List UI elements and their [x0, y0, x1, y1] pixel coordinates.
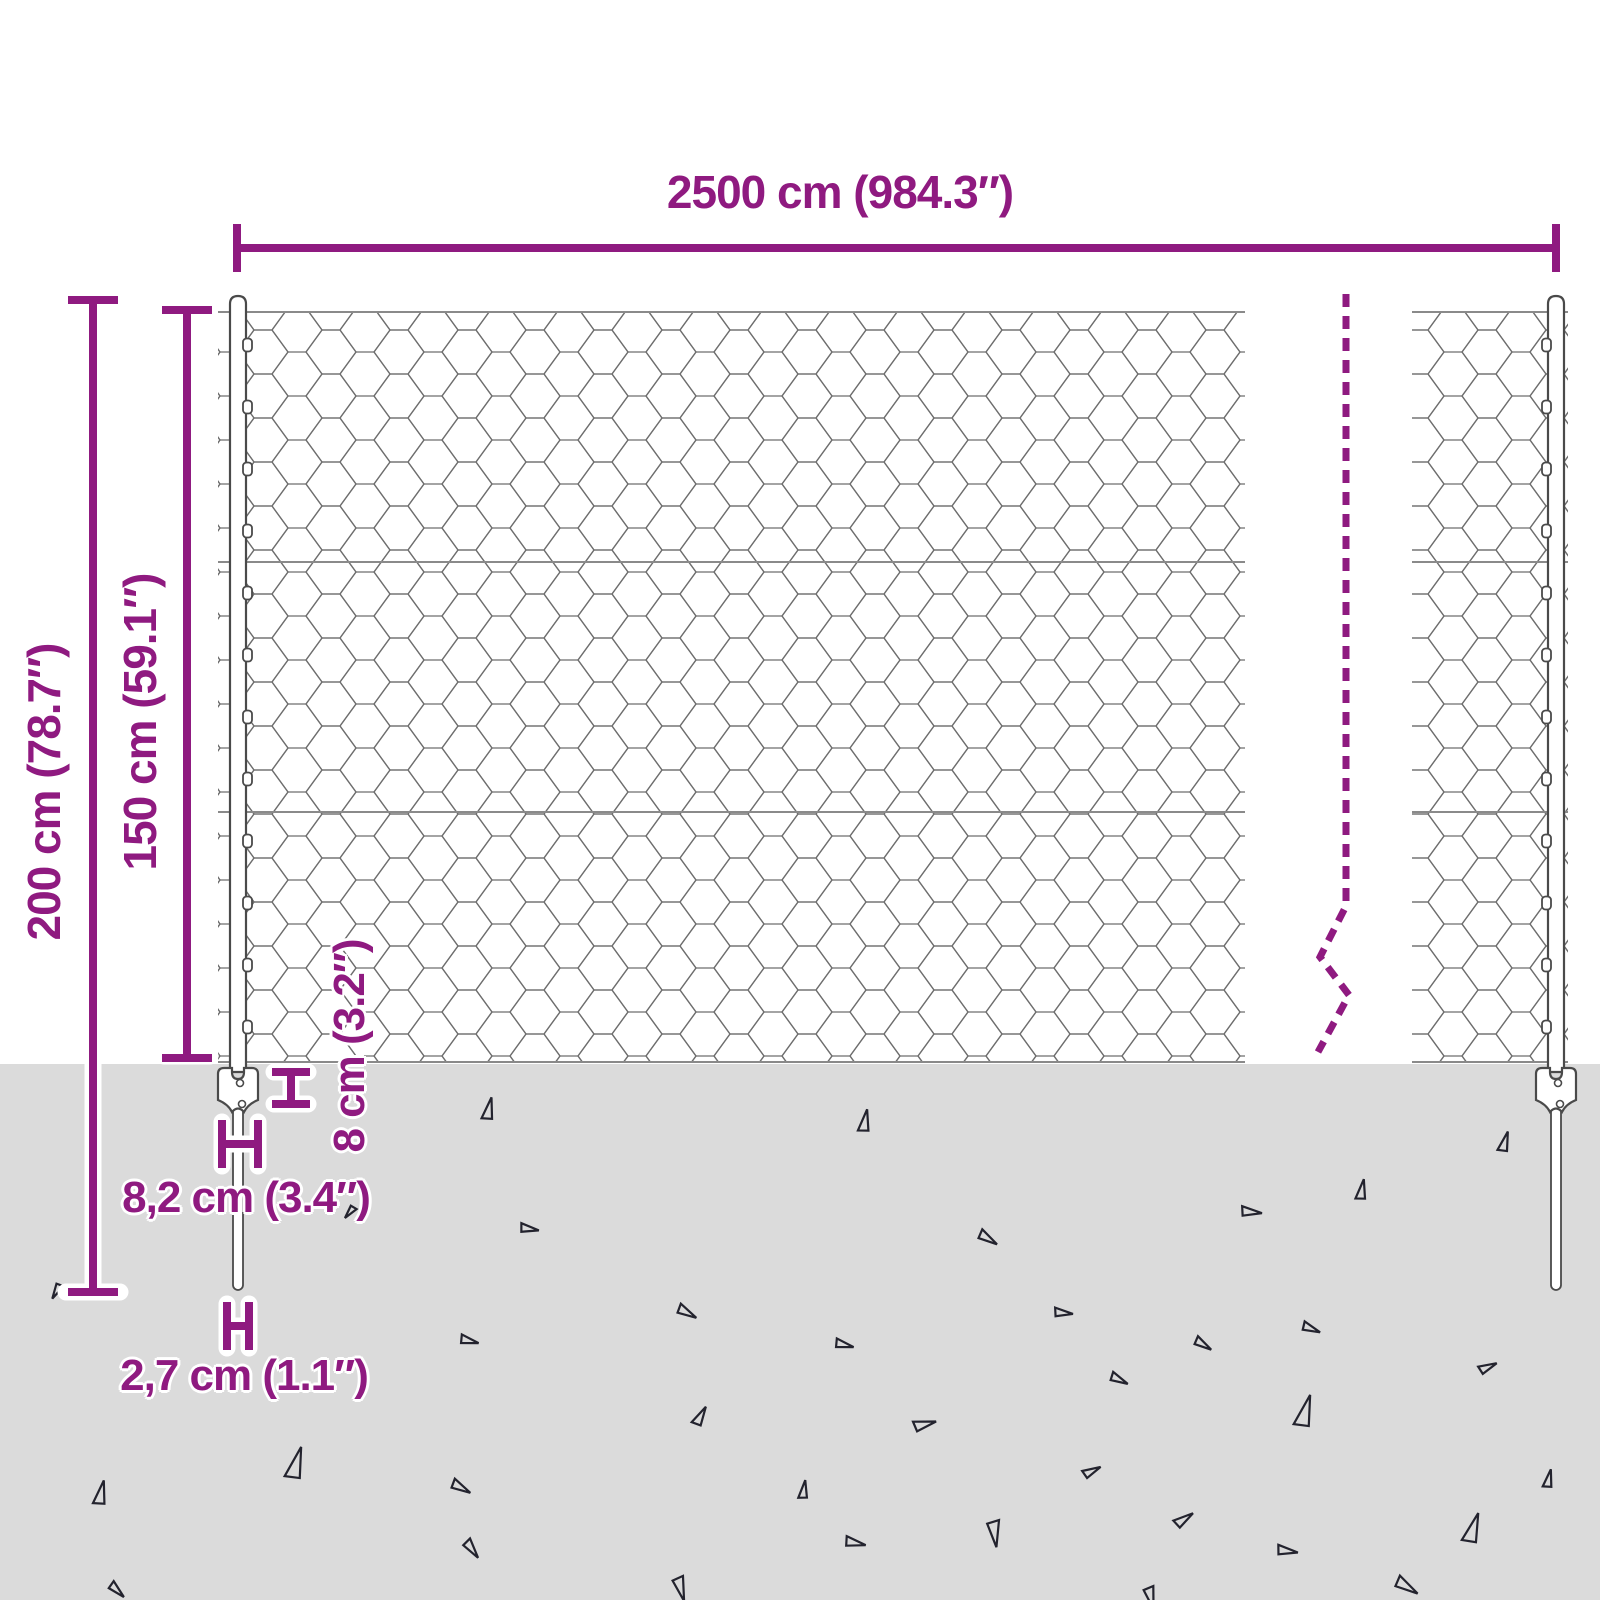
dim-mesh-height: [162, 310, 212, 1058]
wire-clip: [1542, 649, 1551, 662]
plate-hole: [1555, 1080, 1562, 1087]
wire-clip: [243, 401, 252, 414]
break-line: [1318, 294, 1349, 1052]
wire-clip: [1542, 339, 1551, 352]
label-post-diameter: 2,7 cm (1.1″): [120, 1354, 368, 1398]
wire-clip: [243, 711, 252, 724]
wire-clip: [243, 649, 252, 662]
wire-clip: [243, 339, 252, 352]
mesh-panel-right: [1412, 312, 1568, 1063]
wire-clip: [1542, 711, 1551, 724]
plate-hole: [239, 1101, 246, 1108]
wire-clip: [1542, 587, 1551, 600]
wire-clip: [243, 463, 252, 476]
ground-spike-right: [1551, 1098, 1561, 1290]
wire-clip: [243, 525, 252, 538]
wire-clip: [243, 587, 252, 600]
mesh-panels: [218, 312, 1568, 1063]
wire-clip: [243, 897, 252, 910]
wire-clip: [243, 835, 252, 848]
label-plate-width: 8,2 cm (3.4″): [122, 1176, 370, 1220]
wire-clip: [1542, 835, 1551, 848]
wire-clip: [1542, 773, 1551, 786]
wire-clip: [1542, 1021, 1551, 1034]
label-plate-height: 8 cm (3.2″): [328, 939, 372, 1152]
wire-clip: [243, 773, 252, 786]
plate-hole: [1557, 1101, 1564, 1108]
wire-clip: [1542, 401, 1551, 414]
wire-clip: [243, 959, 252, 972]
wire-clip: [1542, 525, 1551, 538]
fence-dimension-diagram: 2500 cm (984.3″) 200 cm (78.7″) 150 cm (…: [0, 0, 1600, 1600]
wire-clip: [1542, 897, 1551, 910]
label-post-total-height: 200 cm (78.7″): [21, 644, 67, 941]
dim-total-width: [237, 224, 1556, 272]
wire-clip: [243, 1021, 252, 1034]
wire-clip: [1542, 463, 1551, 476]
label-mesh-height: 150 cm (59.1″): [117, 574, 163, 871]
label-total-width: 2500 cm (984.3″): [667, 169, 1013, 215]
plate-hole: [237, 1080, 244, 1087]
wire-clip: [1542, 959, 1551, 972]
